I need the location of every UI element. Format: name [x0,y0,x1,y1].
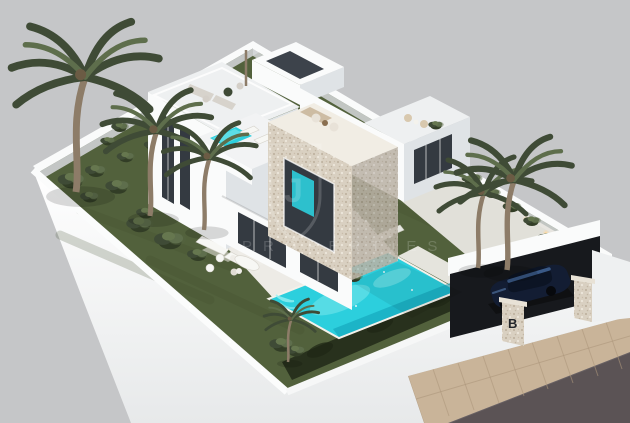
entrance-side-wall [592,250,630,322]
render-canvas: B [0,0,630,423]
gate-pillar-left: B [499,297,527,346]
villa-render: B [0,0,630,423]
watermark-monogram: J [284,172,303,210]
gate-pillar-right [571,275,595,322]
pillar-logo: B [508,316,517,331]
watermark-text: PROPERTIES [242,238,448,255]
